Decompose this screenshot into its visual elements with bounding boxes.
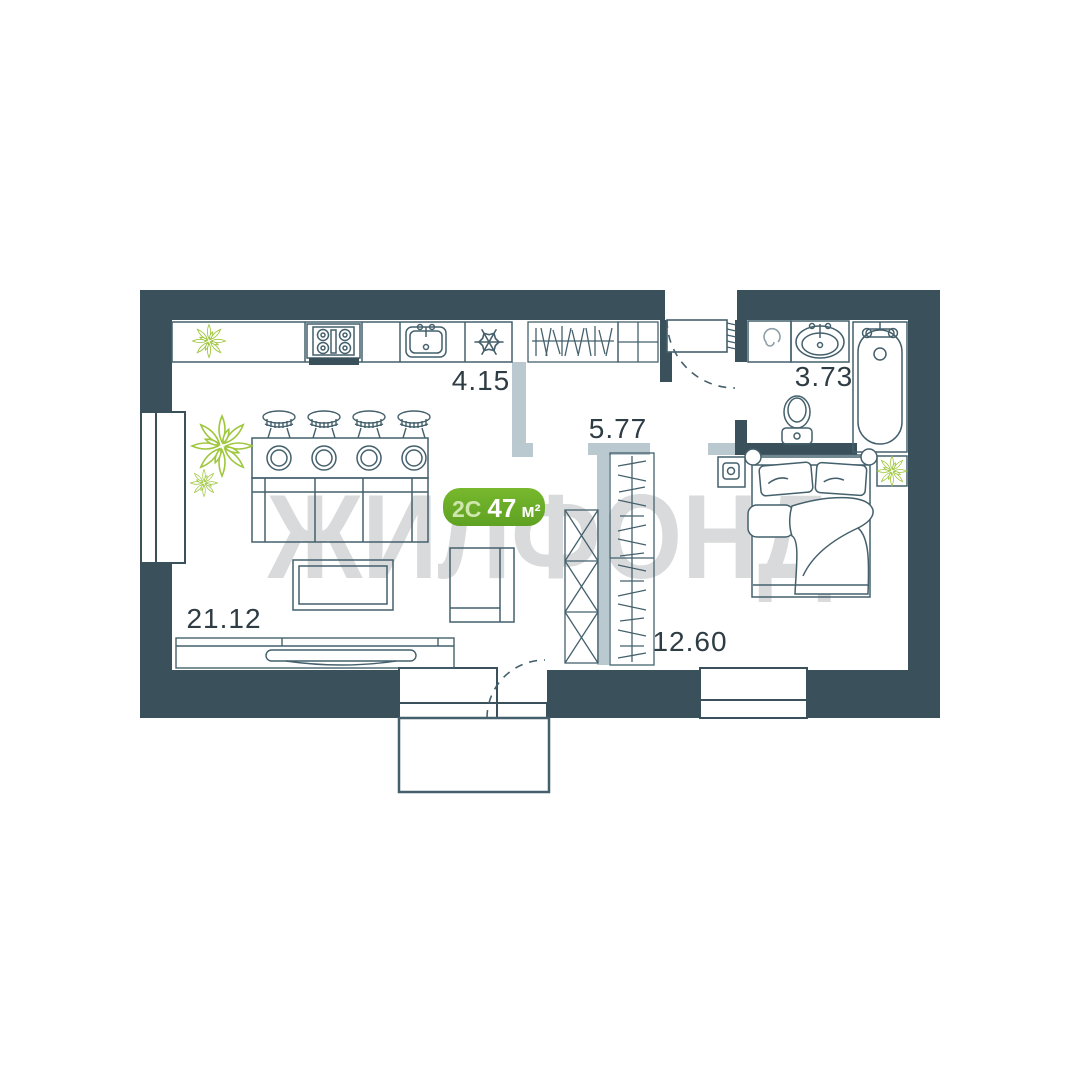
washing-machine-icon bbox=[748, 321, 791, 362]
floor-plan: ЖИЛФОНД bbox=[0, 0, 1080, 1080]
bathtub-icon bbox=[853, 322, 907, 452]
tv-stand bbox=[176, 638, 454, 668]
entrance-door bbox=[667, 320, 736, 388]
kitchen-counter bbox=[172, 322, 512, 365]
kitchen-sink-icon bbox=[406, 325, 446, 358]
bedroom-window bbox=[700, 668, 807, 718]
snowflake-icon bbox=[475, 328, 503, 356]
area-label-bathroom: 3.73 bbox=[795, 361, 854, 392]
area-label-hallway: 5.77 bbox=[589, 413, 648, 444]
stove-icon bbox=[307, 324, 360, 365]
tv-icon bbox=[266, 650, 416, 665]
balcony-side-window bbox=[497, 703, 547, 718]
area-badge: 2С47м² bbox=[443, 488, 545, 526]
plant-icon bbox=[193, 325, 226, 358]
bar-stools bbox=[263, 411, 430, 438]
plant-icon bbox=[192, 416, 252, 476]
area-label-bedroom: 12.60 bbox=[652, 626, 727, 657]
left-window bbox=[141, 412, 185, 563]
plant-icon bbox=[877, 456, 907, 486]
plant-icon bbox=[191, 470, 218, 497]
balcony bbox=[399, 718, 549, 792]
toilet-icon bbox=[782, 396, 812, 444]
bath-sink-icon bbox=[791, 321, 849, 362]
badge-type: 2С bbox=[452, 496, 481, 522]
watermark: ЖИЛФОНД bbox=[267, 470, 833, 604]
area-label-kitchen: 4.15 bbox=[452, 365, 511, 396]
area-label-living: 21.12 bbox=[186, 603, 261, 634]
entry-cabinet bbox=[618, 322, 658, 362]
badge-unit: м² bbox=[521, 501, 540, 521]
balcony-door bbox=[399, 668, 497, 718]
entry-wardrobe bbox=[528, 322, 658, 362]
badge-area: 47 bbox=[487, 493, 516, 523]
